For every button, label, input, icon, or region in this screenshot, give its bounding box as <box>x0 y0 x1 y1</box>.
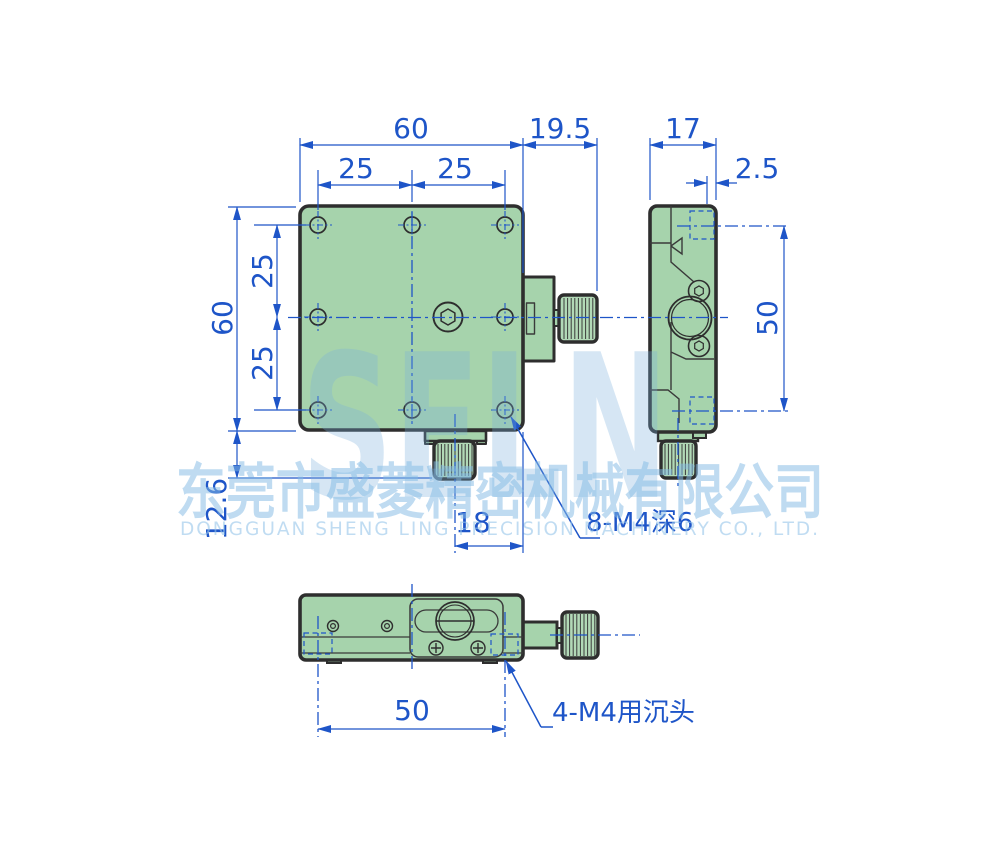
watermark-company-en: DONGGUAN SHENG LING PRECISION MACHINERY … <box>180 518 820 540</box>
callout-counterbore: 4-M4用沉头 <box>552 698 695 728</box>
dim-left-height: 60 <box>206 300 239 336</box>
technical-drawing-page: 60 19.5 25 25 17 2.5 60 25 25 12.6 50 18… <box>0 0 1001 853</box>
dim-knob-protrusion: 19.5 <box>529 112 591 145</box>
dim-side-height: 50 <box>751 300 784 336</box>
drawing-canvas: 60 19.5 25 25 17 2.5 60 25 25 12.6 50 18… <box>0 0 1001 853</box>
dim-top-width: 60 <box>393 112 429 145</box>
leader-counterbore <box>506 661 541 727</box>
dim-top-pitch-left: 25 <box>338 152 374 185</box>
dim-side-step: 2.5 <box>735 152 780 185</box>
dim-left-pitch-top: 25 <box>246 253 279 289</box>
dim-side-width: 17 <box>665 112 701 145</box>
dim-bottom-hole-span: 50 <box>394 694 430 727</box>
dim-left-pitch-bottom: 25 <box>246 345 279 381</box>
dim-top-pitch-right: 25 <box>437 152 473 185</box>
bottom-view <box>300 595 598 663</box>
